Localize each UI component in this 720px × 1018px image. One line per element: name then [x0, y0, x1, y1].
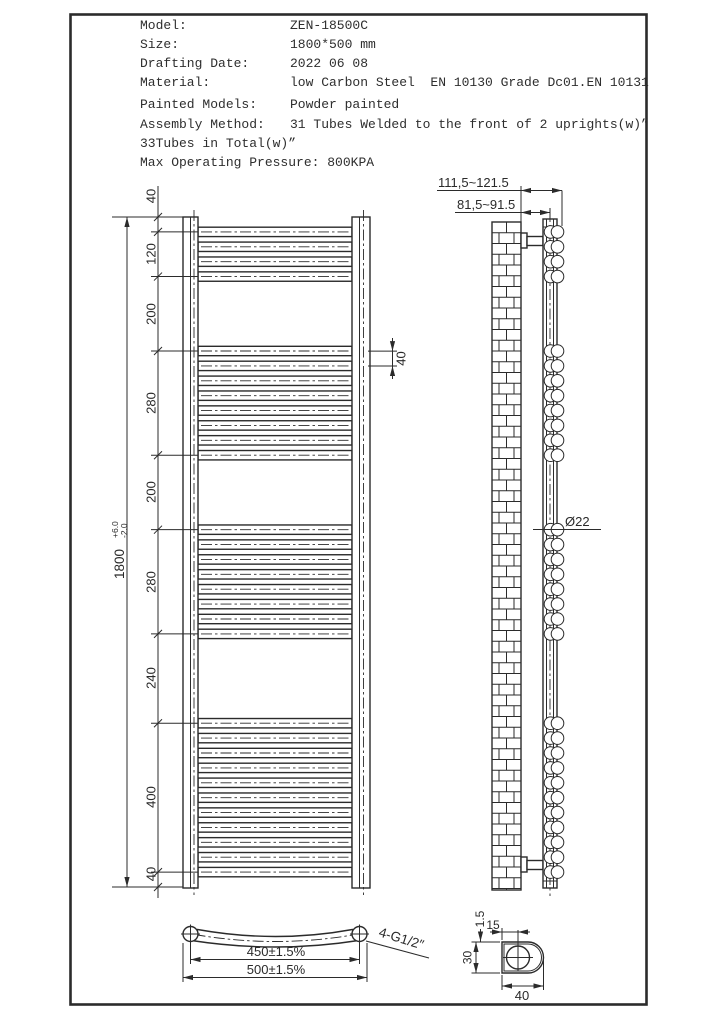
- dim-top-40: 40: [144, 189, 159, 203]
- dim-profile-width: 30: [461, 951, 475, 965]
- dim-120: 120: [144, 243, 159, 265]
- tube-section-circle: [551, 270, 564, 283]
- title-row-material: Material:low Carbon Steel EN 10130 Grade…: [140, 75, 649, 90]
- size-label: Size:: [140, 37, 290, 52]
- radiator-technical-drawing: 40 120 200 280 200 280 240 400 40 1800 +…: [0, 0, 720, 1018]
- tube-section-circle: [551, 419, 564, 432]
- date-label: Drafting Date:: [140, 56, 290, 71]
- dim-profile-depth: 40: [515, 988, 529, 1003]
- assembly-value: 31 Tubes Welded to the front of 2 uprigh…: [290, 117, 649, 132]
- tube-section-circle: [551, 255, 564, 268]
- tube-section-circle: [551, 389, 564, 402]
- title-row-size: Size:1800*500 mm: [140, 37, 376, 52]
- tube-section-circle: [551, 345, 564, 358]
- tube-section-circle: [551, 374, 564, 387]
- svg-text:-2.0: -2.0: [119, 523, 129, 538]
- assembly-label: Assembly Method:: [140, 117, 290, 132]
- detail-view: 30 1.5 15 40: [461, 910, 544, 1003]
- dim-400: 400: [144, 786, 159, 808]
- material-value: low Carbon Steel EN 10130 Grade Dc01.EN …: [290, 75, 649, 90]
- tube-section-circle: [551, 538, 564, 551]
- side-view: 111,5~121.5 81,5~91.5 Ø22: [437, 175, 601, 896]
- dim-200b: 200: [144, 481, 159, 503]
- tube-section-circle: [551, 568, 564, 581]
- dim-280b: 280: [144, 571, 159, 593]
- tube-section-circle: [551, 821, 564, 834]
- dim-wall-offset: 111,5~121.5: [438, 175, 509, 190]
- date-value: 2022 06 08: [290, 56, 368, 71]
- material-label: Material:: [140, 75, 290, 90]
- tube-section-circle: [551, 553, 564, 566]
- title-row-model: Model:ZEN-18500C: [140, 18, 368, 33]
- tube-section-circle: [551, 240, 564, 253]
- svg-text:1800: 1800: [112, 549, 127, 579]
- dim-circle-offset: 15: [486, 918, 500, 932]
- tube-section-circle: [551, 762, 564, 775]
- model-value: ZEN-18500C: [290, 18, 368, 33]
- dim-280a: 280: [144, 392, 159, 414]
- plan-view: 450±1.5% 500±1.5% 4-G1/2″: [181, 925, 429, 983]
- title-note: 33Tubes in Total(w)”: [140, 136, 296, 151]
- overall-dim-label: 1800 +6.0 -2.0: [110, 521, 129, 579]
- title-row-painted: Painted Models:Powder painted: [140, 97, 399, 112]
- title-row-date: Drafting Date:2022 06 08: [140, 56, 368, 71]
- tube-section-circle: [551, 717, 564, 730]
- painted-label: Painted Models:: [140, 97, 290, 112]
- tube-section-circle: [551, 747, 564, 760]
- dim-wall-thickness: 1.5: [473, 910, 487, 927]
- tube-section-circle: [551, 226, 564, 239]
- dim-bracket-offset: 81,5~91.5: [457, 197, 515, 212]
- dim-tube-diameter: Ø22: [565, 514, 590, 529]
- bottom-bracket: [521, 857, 543, 872]
- tube-section-circle: [551, 628, 564, 641]
- title-block: Model:ZEN-18500C Size:1800*500 mm Drafti…: [140, 14, 156, 149]
- title-row-assembly: Assembly Method:31 Tubes Welded to the f…: [140, 117, 649, 132]
- tube-section-circle: [551, 851, 564, 864]
- tube-section-circle: [551, 598, 564, 611]
- front-right-upright: [352, 217, 370, 888]
- tube-section-circle: [551, 732, 564, 745]
- tube-section-circle: [551, 434, 564, 447]
- tube-section-circle: [551, 866, 564, 879]
- dim-bottom-40: 40: [144, 867, 159, 881]
- tube-section-circle: [551, 806, 564, 819]
- tube-section-circle: [551, 836, 564, 849]
- dim-overall-width: 500±1.5%: [247, 962, 306, 977]
- pressure-label: Max Operating Pressure:: [140, 155, 319, 170]
- tube-section-circle: [551, 583, 564, 596]
- pressure-value: 800KPA: [327, 155, 374, 170]
- top-bracket: [521, 233, 543, 248]
- tube-section-circle: [551, 404, 564, 417]
- tube-section-circle: [551, 449, 564, 462]
- dim-200a: 200: [144, 303, 159, 325]
- tube-section-circle: [551, 613, 564, 626]
- front-view: 40 120 200 280 200 280 240 400 40 1800 +…: [110, 186, 409, 898]
- drawing-page: 40 120 200 280 200 280 240 400 40 1800 +…: [0, 0, 720, 1018]
- dim-240: 240: [144, 667, 159, 689]
- size-value: 1800*500 mm: [290, 37, 376, 52]
- model-label: Model:: [140, 18, 290, 33]
- tube-section-circle: [551, 791, 564, 804]
- thread-label: 4-G1/2″: [377, 925, 426, 953]
- tube-section-circle: [551, 360, 564, 373]
- title-row-pressure: Max Operating Pressure: 800KPA: [140, 155, 374, 170]
- painted-value: Powder painted: [290, 97, 399, 112]
- dim-tube-pitch-40: 40: [394, 351, 409, 365]
- tube-section-circle: [551, 776, 564, 789]
- dim-center-distance: 450±1.5%: [247, 944, 306, 959]
